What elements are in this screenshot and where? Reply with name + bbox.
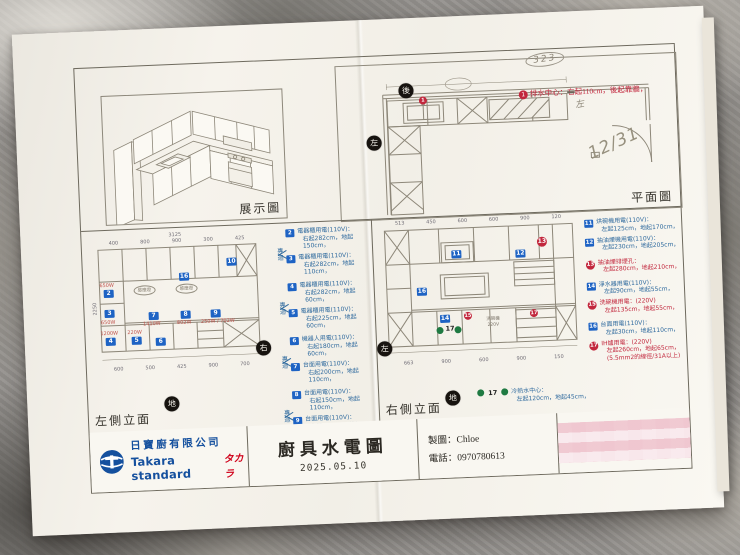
outlet-marker: 16 — [588, 322, 597, 330]
company-cell: 日寶廚有限公司 Takara standard タカラ — [90, 426, 250, 493]
legend-item: 6機器人用電(110V)：右起180cm，地起60cm， — [290, 333, 375, 359]
dim: 600 — [478, 216, 510, 223]
outlet-marker: 11 — [584, 220, 593, 228]
dim: 600 — [465, 356, 503, 364]
brand-name-jp: タカラ — [223, 449, 249, 480]
outlet-marker-6: 6 — [156, 338, 166, 346]
dedicated-circuit-label: 專迴 — [279, 409, 294, 424]
outlet-marker: 8 — [292, 391, 301, 399]
legend-pair-group: 專迴 6機器人用電(110V)：右起180cm，地起60cm， 7台面用電(11… — [276, 333, 376, 389]
dim: 900 — [427, 358, 465, 366]
floor-plan-label: 平面圖 — [631, 187, 674, 206]
vent-marker: 13 — [586, 260, 595, 269]
display-drawing-panel: 展示圖 — [100, 88, 287, 226]
legend-item: 3電器櫃用電(110V)：右起282cm，地起110cm， — [286, 251, 371, 277]
dedicated-circuit-label: 專迴 — [272, 247, 287, 262]
legend-item: 2電器櫃用電(110V)：右起282cm，地起150cm， — [285, 225, 370, 251]
legend-item: 13抽油煙排煙孔：左起280cm，地起210cm， — [586, 255, 683, 274]
blueprint-sheet: 展示圖 — [12, 6, 724, 537]
dim: 150 — [540, 353, 578, 361]
right-elevation-label: 右側立面 — [385, 399, 442, 418]
right-elevation-drawing: 513 450 600 600 900 120 — [378, 213, 585, 389]
document-title-cell: 廚具水電圖 2025.05.10 — [247, 419, 419, 486]
legend-item: 7台面用電(110V)：右起200cm，地起110cm， — [291, 359, 376, 385]
left-elevation-panel: 3125 400 800 900 300 425 — [81, 220, 380, 434]
redaction-mosaic — [558, 418, 692, 463]
dedicated-circuit-label: 專迴 — [276, 355, 291, 370]
legend-item: 15洗碗機用電：(220V)左起135cm，地起55cm， — [587, 296, 684, 315]
redacted-cell — [557, 408, 691, 473]
orientation-ground-badge: 地 — [164, 396, 180, 412]
drafter-line: 製圖：Chloe — [428, 427, 558, 446]
drafter-name: Chloe — [456, 434, 479, 445]
dim: 900 — [509, 215, 541, 222]
note-head: 排水中心： — [530, 88, 568, 99]
dim-height: 2250 — [92, 303, 99, 316]
dim: 513 — [384, 220, 416, 227]
water-center-note: 17 冷熱水中心：左起120cm，地起45cm， — [477, 385, 590, 405]
legend-pair-group: 專迴 2電器櫃用電(110V)：右起282cm，地起150cm， 3電器櫃用電(… — [271, 225, 371, 281]
brand-name: Takara standard — [131, 451, 220, 483]
document-title: 廚具水電圖 — [277, 431, 388, 461]
legend-item: 5電器櫃用電(110V)：右起225cm，地起60cm， — [288, 305, 373, 331]
legend-item: 11烘碗機用電(110V)：左起125cm，地起170cm， — [584, 215, 681, 234]
legend-item: 12抽油煙機用電(110V)：左起230cm，地起205cm， — [585, 233, 682, 252]
phone-number: 0970780613 — [457, 451, 505, 463]
dim: 700 — [229, 361, 261, 368]
note-number-badge: 1 — [519, 90, 528, 99]
outlet-marker: 4 — [287, 283, 296, 291]
dedicated-circuit-label: 專迴 — [274, 301, 289, 316]
legend-item: 14淨水器用電(110V)：左起90cm，地起55cm， — [587, 277, 684, 296]
legend-item: 17IH爐用電：(220V)左起260cm，地起65cm，(5.5mm2的線徑/… — [589, 336, 686, 363]
document-date: 2025.05.10 — [300, 460, 368, 474]
outlet-marker-2: 2 — [104, 290, 114, 298]
water-point-icon — [477, 389, 484, 396]
outlet-marker-3: 3 — [104, 310, 114, 318]
outlet-marker: 6 — [290, 337, 299, 345]
left-elevation-linework — [88, 241, 268, 368]
water-point-icon — [501, 388, 508, 395]
dim: 425 — [166, 363, 198, 370]
water-point-number: 17 — [445, 324, 454, 332]
note-tail: 起110cm，後起靠牆， — [574, 84, 647, 96]
watt-label: 802W — [177, 319, 192, 326]
watt-label: 1410W — [143, 321, 161, 328]
dim: 900 — [197, 362, 229, 369]
right-elevation-legend: 11烘碗機用電(110V)：左起125cm，地起170cm， 12抽油煙機用電(… — [584, 215, 686, 366]
drafter-info-cell: 製圖：Chloe 電話：0970780613 — [417, 413, 560, 479]
orientation-right-badge: 右 — [256, 340, 272, 356]
outlet-marker: 7 — [291, 363, 300, 371]
outlet-marker-16: 16 — [417, 288, 427, 296]
dim: 600 — [447, 217, 479, 224]
outlet-marker-10: 10 — [226, 258, 236, 266]
right-elevation-panel: 513 450 600 600 900 120 — [372, 207, 689, 422]
legend-item: 8台面用電(110V)：右起150cm，地起110cm， — [292, 387, 377, 413]
outlet-marker: 3 — [286, 255, 295, 263]
outlet-marker: 12 — [585, 238, 594, 246]
outlet-marker-14: 14 — [440, 315, 450, 323]
watt-label: 650W — [99, 283, 114, 290]
dim: 900 — [502, 355, 540, 363]
left-elevation-label: 左側立面 — [95, 410, 152, 429]
legend-pair-group: 專迴 4電器櫃用電(110V)：右起282cm，地起60cm， 5電器櫃用電(1… — [273, 279, 373, 335]
outlet-marker-11: 11 — [451, 250, 461, 258]
phone-line: 電話：0970780613 — [428, 445, 558, 464]
dim: 120 — [540, 213, 572, 220]
watt-label: 220W — [127, 330, 142, 337]
legend-item: 16台面用電(110V)：左起30cm，地起110cm， — [588, 318, 685, 337]
display-drawing-label: 展示圖 — [239, 199, 282, 218]
left-elevation-drawing: 3125 400 800 900 300 425 — [87, 228, 269, 395]
outlet-marker-9: 9 — [210, 309, 220, 317]
takara-logo-icon — [98, 445, 125, 478]
drawing-frame: 展示圖 — [73, 43, 692, 494]
watt-label: 650W — [101, 320, 116, 327]
outlet-marker: 14 — [587, 282, 596, 290]
dim: 450 — [415, 219, 447, 226]
elevations-row: 3125 400 800 900 300 425 — [81, 206, 689, 435]
ih-stove-marker: 17 — [589, 341, 598, 350]
orientation-ground-badge: 地 — [445, 390, 461, 406]
outlet-marker-12: 12 — [515, 249, 525, 257]
outlet-marker: 15 — [587, 300, 596, 309]
dim: 500 — [134, 365, 166, 372]
dishwasher-note: 洗碗機 220V — [482, 316, 504, 329]
dim: 663 — [390, 360, 428, 368]
floor-plan-panel: 1 後 左 323 12/31 1排水中心：右起110cm，後起靠牆， 左 平面… — [334, 52, 682, 222]
watt-label: 1200W — [100, 331, 118, 338]
outlet-marker-8: 8 — [181, 310, 191, 318]
legend-item: 4電器櫃用電(110V)：右起282cm，地起60cm， — [287, 279, 372, 305]
outlet-marker-16: 16 — [179, 273, 189, 281]
outlet-marker-4: 4 — [106, 338, 116, 346]
outlet-marker-7: 7 — [149, 312, 159, 320]
dim: 600 — [103, 366, 135, 373]
outlet-marker: 5 — [289, 309, 298, 317]
outlet-marker-5: 5 — [132, 337, 142, 345]
photo-scene: { "colors":{"marker_blue":"#1e63c4","leg… — [0, 0, 740, 555]
right-elevation-linework — [378, 221, 583, 357]
outlet-marker: 2 — [285, 229, 294, 237]
